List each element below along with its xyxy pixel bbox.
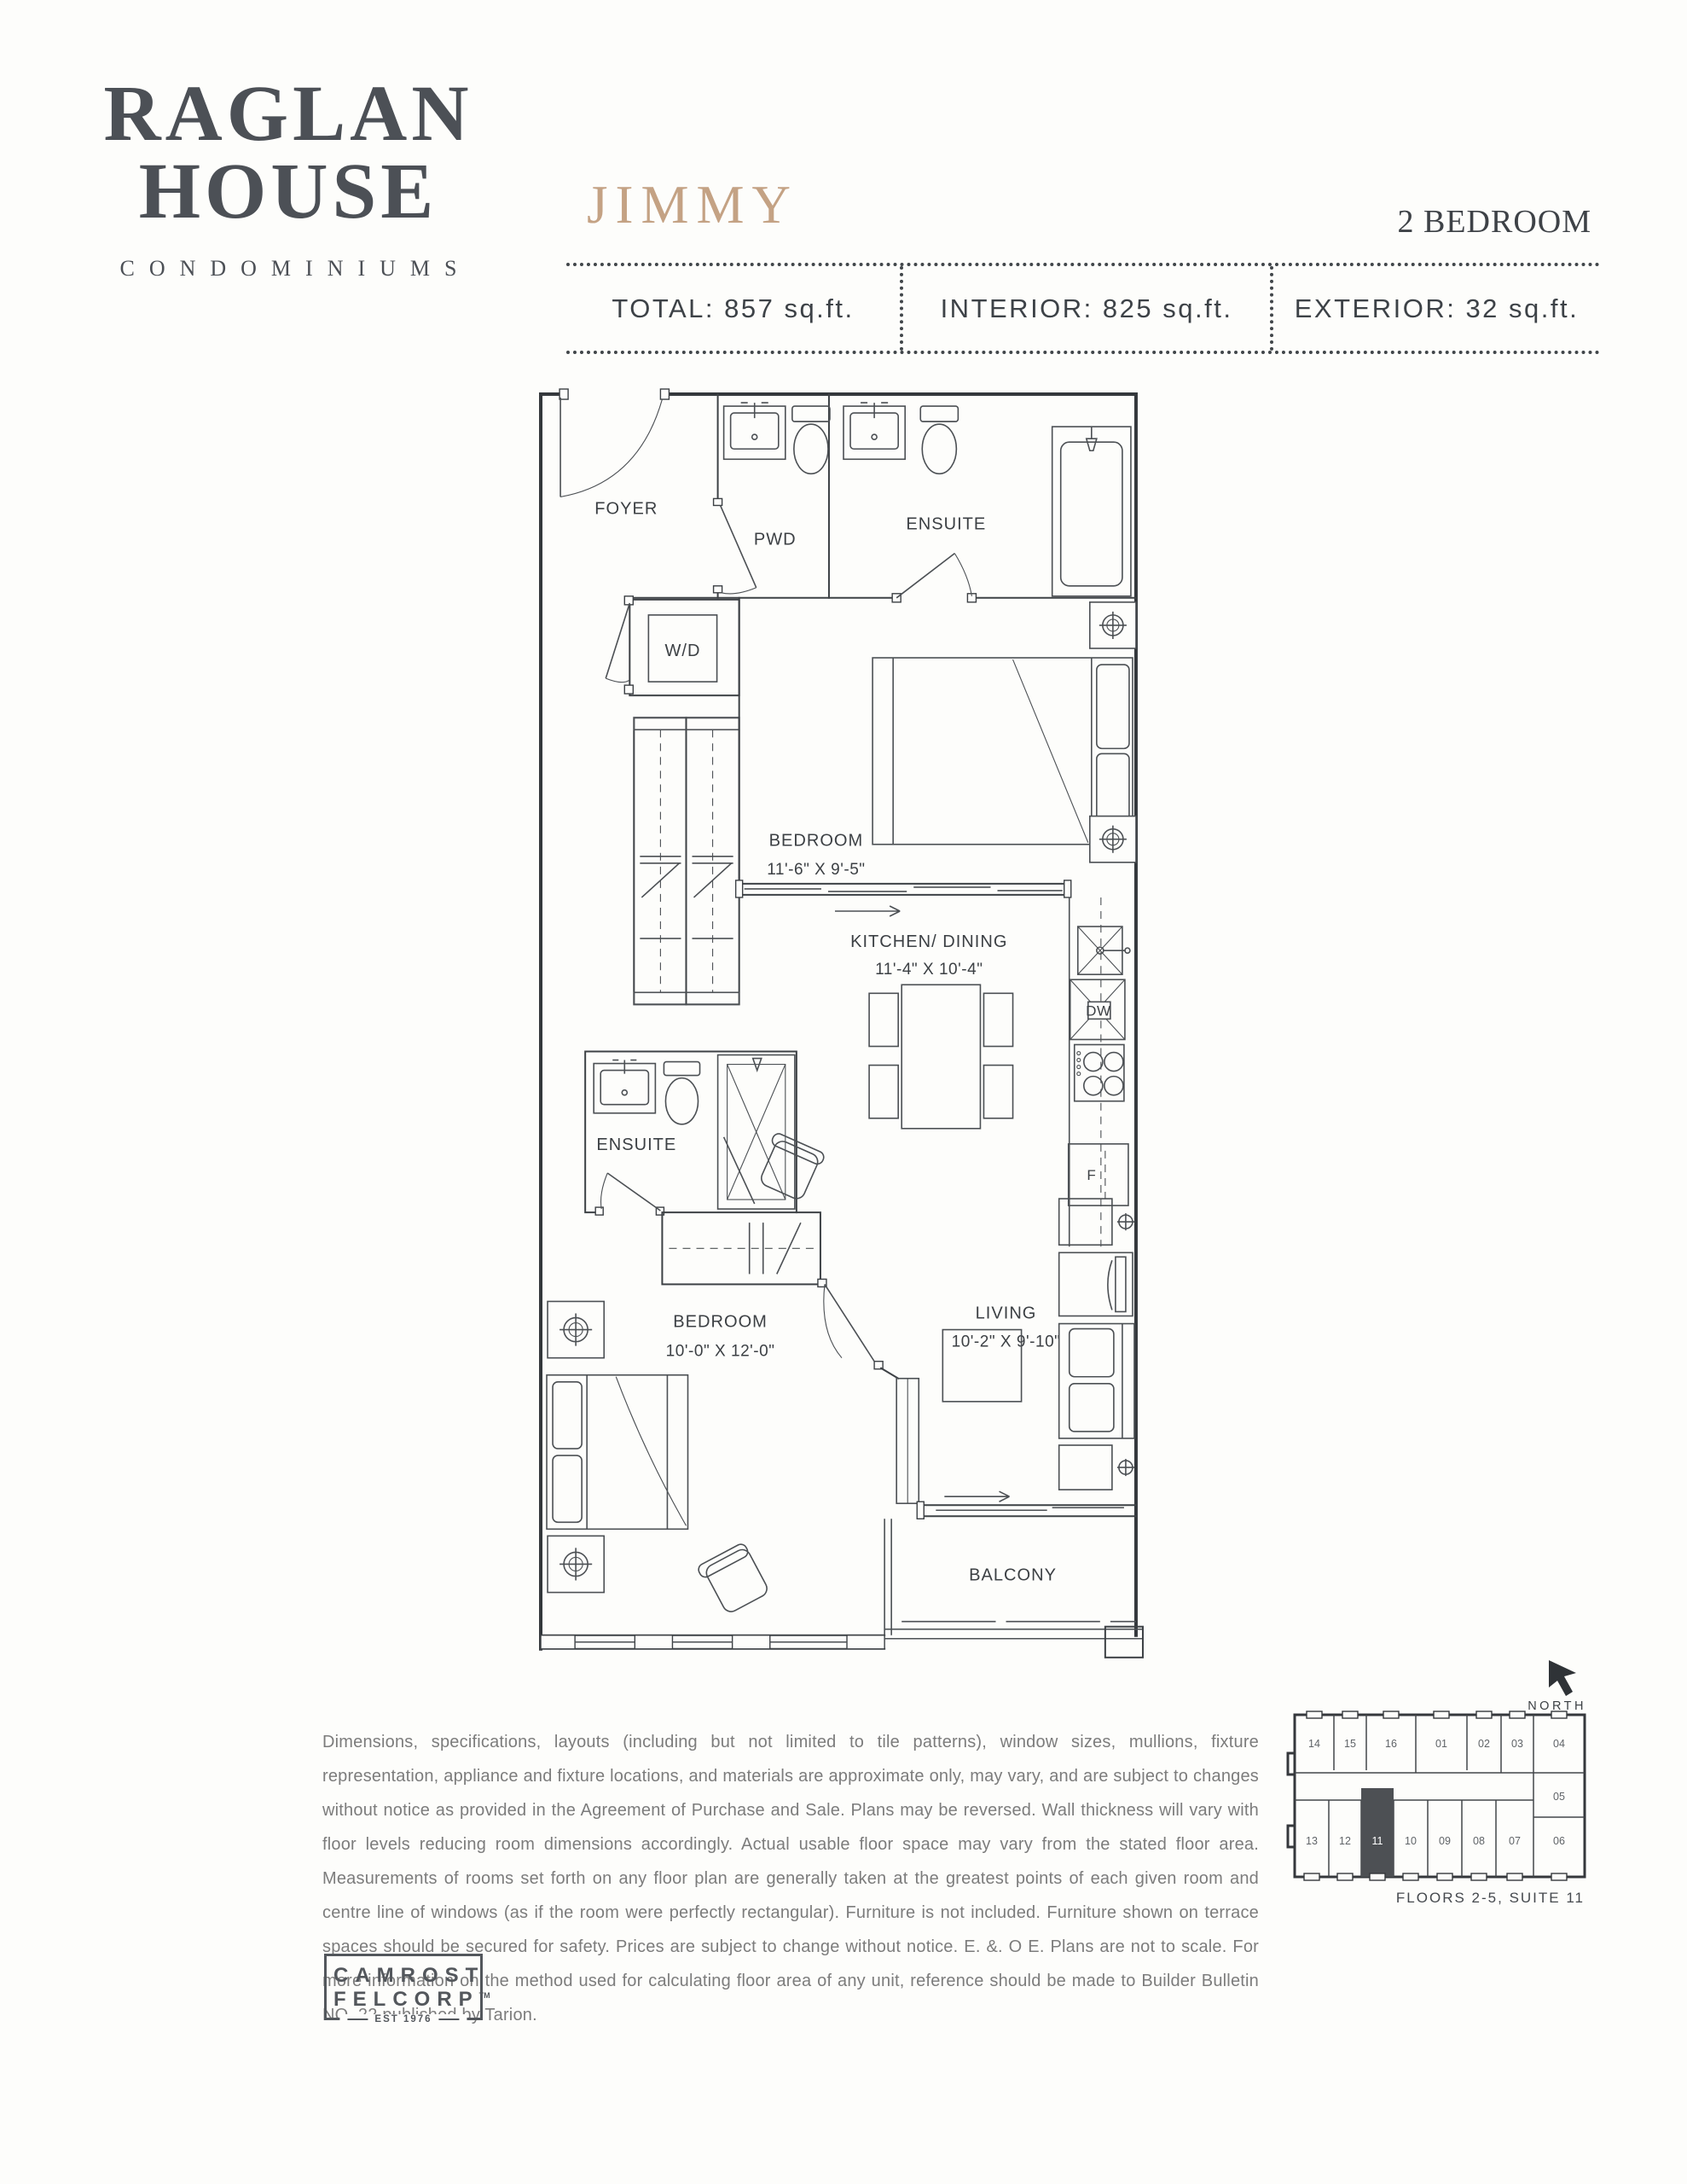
floorplan-drawing: W/D [534, 384, 1150, 1706]
living-dims: 10'-2" X 9'-10" [952, 1333, 1061, 1351]
suite-06: 06 [1553, 1835, 1565, 1847]
dw-label: DW [1086, 1002, 1111, 1019]
developer-logo: CAMROST FELCORPTM EST 1976 [324, 1954, 483, 2020]
living-room: LIVING 10'-2" X 9'-10" [754, 1132, 1134, 1490]
exterior-walls [541, 394, 1136, 1649]
bedroom2: BEDROOM 10'-0" X 12'-0" [547, 1301, 774, 1617]
developer-est-band: EST 1976 [339, 2014, 467, 2024]
balcony: BALCONY [884, 1519, 1143, 1658]
laundry-closet: W/D [606, 596, 739, 695]
fridge: F [1069, 1144, 1128, 1205]
suite-13: 13 [1306, 1835, 1318, 1847]
developer-name-line1: CAMROST [327, 1964, 480, 1988]
range [1075, 1044, 1124, 1101]
floorplan-sheet: RAGLAN HOUSE CONDOMINIUMS JIMMY 2 BEDROO… [0, 0, 1687, 2184]
living-label: LIVING [976, 1304, 1037, 1323]
living-door [818, 1279, 919, 1503]
tv-console [1059, 1252, 1133, 1316]
est-line-right [439, 2018, 460, 2020]
bedroom2-chair [697, 1542, 770, 1618]
ensuite1-bathtub [1052, 427, 1131, 596]
north-arrow: NORTH [1528, 1660, 1586, 1713]
plan-name: JIMMY [587, 174, 798, 236]
pwd-sink [724, 403, 786, 459]
trademark-symbol: TM [479, 1991, 490, 2000]
ensuite2-label: ENSUITE [596, 1136, 676, 1154]
bedroom1-dims: 11'-6" X 9'-5" [767, 861, 865, 879]
kitchen-sink [1078, 926, 1130, 974]
brand-logo: RAGLAN HOUSE CONDOMINIUMS [96, 75, 481, 282]
suite-09: 09 [1439, 1835, 1451, 1847]
bedroom1: BEDROOM 11'-6" X 9'-5" [739, 598, 1136, 884]
bedroom2-label: BEDROOM [673, 1313, 768, 1332]
living-armchair [754, 1132, 826, 1203]
bedroom2-bed [547, 1375, 687, 1530]
side-table-bottom [1059, 1445, 1134, 1490]
living-sofa [1059, 1324, 1134, 1438]
est-line-left [347, 2018, 368, 2020]
dishwasher: DW [1070, 979, 1125, 1039]
suite-08: 08 [1473, 1835, 1485, 1847]
keyplan-building: 14 15 16 01 02 03 04 05 13 12 11 10 09 0… [1288, 1711, 1585, 1880]
brand-name-line2: HOUSE [96, 153, 481, 230]
ensuite2-toilet [664, 1062, 699, 1124]
suite-01: 01 [1435, 1738, 1447, 1750]
kitchen-dims: 11'-4" X 10'-4" [875, 961, 983, 979]
bedroom1-wardrobes [634, 717, 739, 1004]
ensuite2-shower [718, 1055, 795, 1210]
suite-07: 07 [1509, 1835, 1521, 1847]
keyplan-caption: FLOORS 2-5, SUITE 11 [1396, 1890, 1585, 1906]
fridge-label: F [1087, 1167, 1096, 1183]
balcony-door [917, 1491, 1136, 1519]
suite-03: 03 [1511, 1738, 1523, 1750]
suite-16: 16 [1385, 1738, 1397, 1750]
suite-12: 12 [1339, 1835, 1351, 1847]
kitchen-label: KITCHEN/ DINING [850, 932, 1007, 951]
window-wall [541, 1635, 884, 1649]
suite-02: 02 [1478, 1738, 1490, 1750]
stat-exterior: EXTERIOR: 32 sq.ft. [1273, 266, 1600, 351]
developer-name-line2: FELCORPTM [327, 1988, 480, 2012]
stat-total: TOTAL: 857 sq.ft. [566, 266, 900, 351]
ensuite1-label: ENSUITE [906, 515, 986, 534]
ensuite1-sink [843, 403, 905, 459]
suite-10: 10 [1405, 1835, 1417, 1847]
wd-label: W/D [664, 642, 700, 660]
plan-type: 2 BEDROOM [1397, 203, 1591, 241]
sliding-partition [736, 880, 1071, 916]
brand-name-line1: RAGLAN [96, 75, 481, 153]
foyer-label: FOYER [594, 499, 658, 518]
ensuite1-toilet [920, 406, 958, 473]
suite-05: 05 [1553, 1791, 1565, 1803]
entry-door [559, 389, 669, 497]
ensuite2-sink [594, 1060, 655, 1113]
balcony-label: BALCONY [969, 1566, 1057, 1585]
stat-interior: INTERIOR: 825 sq.ft. [900, 266, 1273, 351]
suite-15: 15 [1344, 1738, 1356, 1750]
suite-11: 11 [1372, 1835, 1383, 1847]
bedroom2-dims: 10'-0" X 12'-0" [666, 1343, 775, 1361]
developer-name-text: FELCORP [333, 1988, 479, 2011]
suite-14: 14 [1308, 1738, 1320, 1750]
ensuite2: ENSUITE [585, 1052, 797, 1216]
bedroom2-closet [662, 1212, 820, 1284]
brand-subtitle: CONDOMINIUMS [96, 256, 481, 282]
kitchen-dining: KITCHEN/ DINING 11'-4" X 10'-4" [850, 897, 1130, 1246]
pwd-label: PWD [754, 531, 797, 549]
bedroom1-label: BEDROOM [769, 832, 864, 851]
keyplan: NORTH 14 15 16 [1278, 1655, 1610, 1911]
dining-table [869, 985, 1012, 1129]
highlighted-suite [1361, 1788, 1394, 1877]
developer-est-label: EST 1976 [374, 2014, 432, 2024]
area-stats-band: TOTAL: 857 sq.ft. INTERIOR: 825 sq.ft. E… [566, 263, 1600, 354]
pwd-toilet [792, 406, 830, 473]
suite-04: 04 [1553, 1738, 1565, 1750]
